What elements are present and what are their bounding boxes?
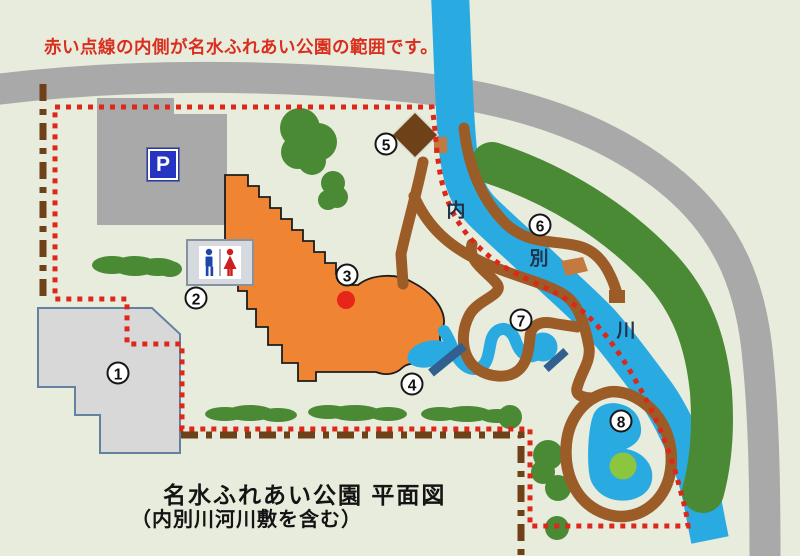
- marker-8: 8: [610, 410, 633, 433]
- path-end-platform: [609, 290, 625, 303]
- park-map: 赤い点線の内側が名水ふれあい公園の範囲です。 名水ふれあい公園 平面図 （内別川…: [0, 0, 800, 556]
- marker-2: 2: [185, 287, 208, 310]
- marker-1: 1: [107, 362, 130, 385]
- toilet-icon: [187, 240, 253, 285]
- parking-sign-label: P: [148, 149, 178, 180]
- marker-4: 4: [401, 373, 424, 396]
- marker-5: 5: [375, 133, 398, 156]
- pond-island: [610, 453, 637, 480]
- map-subtitle: （内別川河川敷を含む）: [131, 503, 362, 532]
- marker-3: 3: [336, 264, 359, 287]
- boundary-notice: 赤い点線の内側が名水ふれあい公園の範囲です。: [44, 34, 438, 59]
- river-label-uchi: 内: [446, 196, 465, 223]
- marker-7: 7: [510, 309, 533, 332]
- site-3-dot: [337, 291, 355, 309]
- parking-icon: P: [146, 147, 180, 182]
- park-map-graphic: [0, 0, 800, 556]
- hedge-row: [205, 405, 515, 423]
- river-label-kawa: 川: [616, 316, 635, 343]
- river-label-betsu: 別: [529, 244, 548, 271]
- marker-6: 6: [529, 214, 552, 237]
